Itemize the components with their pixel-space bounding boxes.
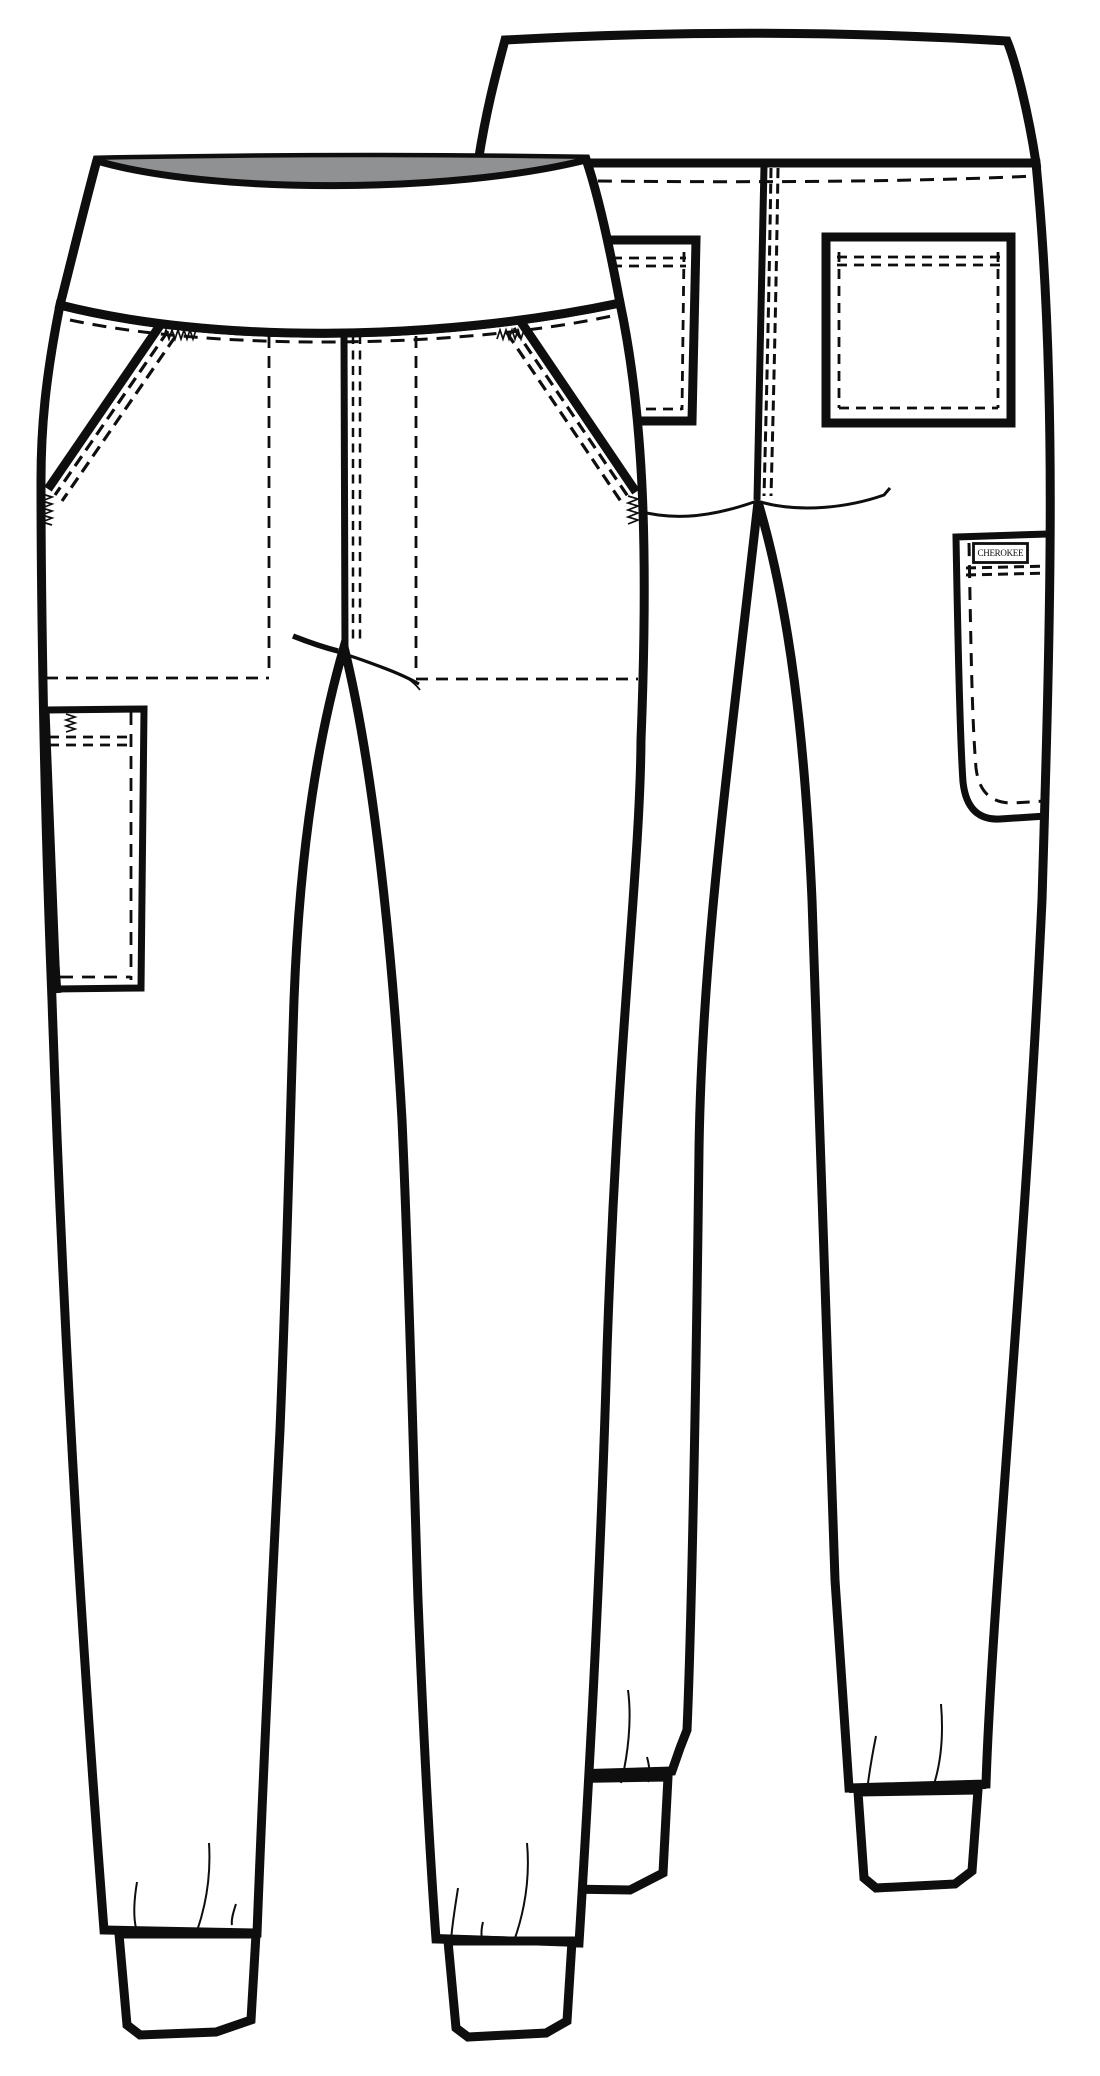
svg-text:CHEROKEE: CHEROKEE [978, 548, 1025, 558]
